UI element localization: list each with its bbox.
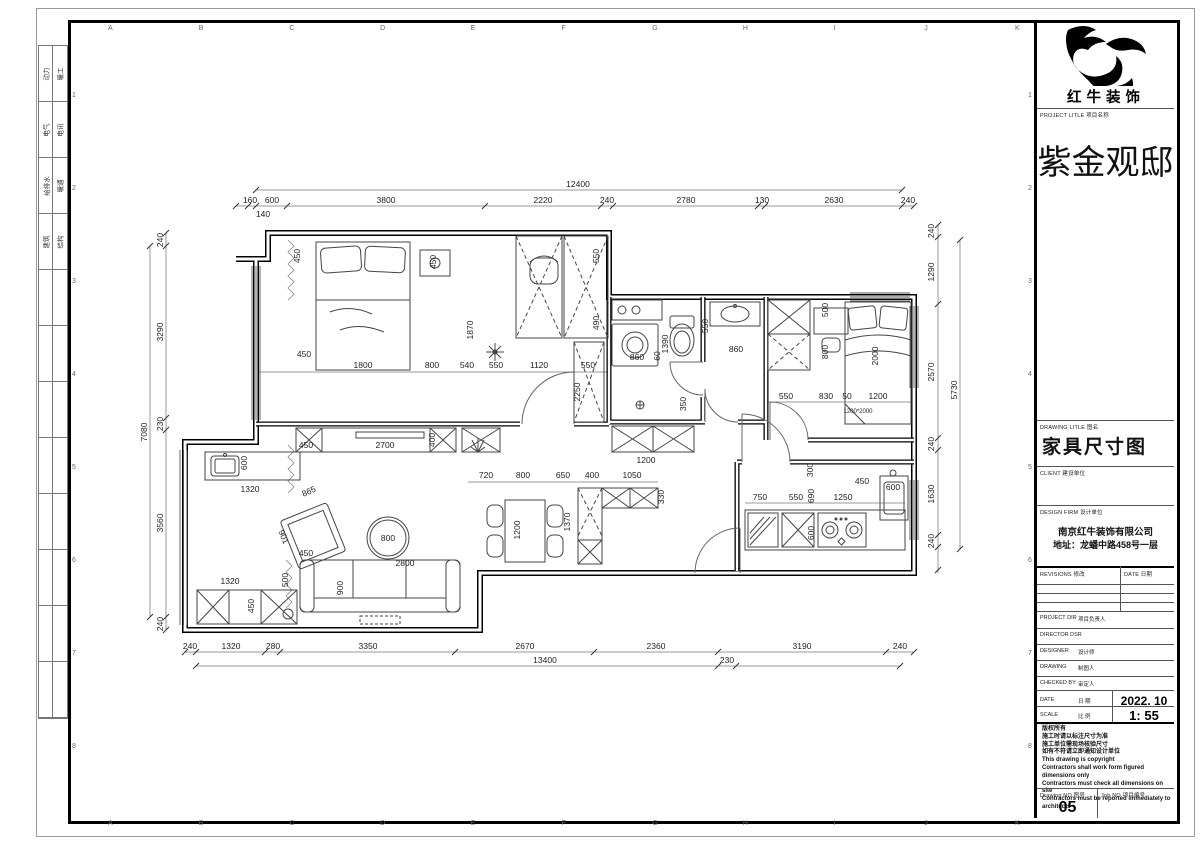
dimension-label: 12400 (566, 179, 590, 189)
vanity-sink (710, 302, 760, 326)
redniu-logo-icon (1050, 24, 1160, 86)
dimension-label: 350 (678, 397, 688, 411)
row-label: DIRECTOR DSR (1040, 632, 1082, 638)
dimension-lines (150, 190, 960, 666)
row-label-cn: 审定人 (1078, 680, 1095, 688)
dimension-label: 50 (842, 391, 852, 401)
divider (1037, 676, 1174, 677)
dimension-label: 13400 (533, 655, 557, 665)
drawing-sheet: { "sheet": { "grid_letters": ["A","B","C… (0, 0, 1200, 844)
dimension-label: 1320 (222, 641, 241, 651)
divider (1037, 690, 1174, 691)
scale-value: 1: 55 (1114, 708, 1174, 723)
kitchen-counter (745, 510, 905, 550)
dimension-label: 865 (300, 484, 317, 499)
dimension-label: 1200*2000 (843, 409, 873, 415)
dimension-label: 2000 (870, 346, 880, 365)
row-label-cn: 项目负责人 (1078, 615, 1106, 623)
dimension-label: 490 (591, 316, 601, 330)
dimension-label: 400 (427, 433, 437, 447)
dimension-label: 230 (720, 655, 734, 665)
dimension-label: 1250 (834, 492, 853, 502)
dimension-label: 800 (425, 360, 439, 370)
wardrobe-bedroom2 (768, 300, 810, 370)
dimension-label: 240 (926, 437, 936, 451)
drawing-no-label: Drawing NO 图号 (1040, 791, 1085, 799)
dimension-label: 860 (729, 344, 743, 354)
dimension-label: 240 (926, 224, 936, 238)
job-no-label: Job NO 项目编号 (1101, 791, 1145, 799)
master-bed (316, 242, 410, 370)
dimension-label: 1800 (354, 360, 373, 370)
dimension-label: 1320 (241, 484, 260, 494)
divider (1037, 628, 1174, 629)
armchair (280, 503, 346, 570)
dimension-label: 500 (820, 303, 830, 317)
dimension-label: 5730 (949, 380, 959, 399)
dimension-label: 450 (246, 599, 256, 613)
dimension-label: 300 (805, 463, 815, 477)
note-line: 如有不符请立即通知设计单位 (1042, 749, 1172, 757)
walls (185, 233, 914, 630)
dimension-label: 600 (806, 526, 816, 540)
design-firm-address: 地址：龙蟠中路458号一层 (1037, 538, 1174, 551)
floor-plan: 1240016060038002220240278013026302401402… (0, 0, 1200, 844)
dimension-label: 720 (479, 470, 493, 480)
dimension-label: 800 (516, 470, 530, 480)
date-label: DATE (1040, 697, 1054, 703)
dimension-label: 3350 (359, 641, 378, 651)
company-logo-text: 红牛装饰 (1040, 86, 1172, 107)
drawing-no-value: 05 (1040, 799, 1095, 817)
floor-drain-icon (636, 401, 644, 409)
divider (1037, 505, 1174, 506)
dimension-label: 1200 (512, 520, 522, 539)
kitchen-sink (880, 470, 908, 520)
dimension-label: 450 (297, 349, 311, 359)
dimension-label: 2360 (647, 641, 666, 651)
note-line: 施工时请以标注尺寸为准 (1042, 734, 1172, 742)
dimension-label: 750 (753, 492, 767, 502)
note-line: This drawing is copyright (1042, 757, 1172, 765)
divider (1037, 420, 1174, 421)
dining-cabinet (578, 488, 658, 564)
project-name: 紫金观邸 (1037, 130, 1174, 198)
divider (1112, 690, 1113, 722)
revisions-label: REVISIONS 修改 (1040, 570, 1085, 578)
dimension-label: 130 (755, 195, 769, 205)
dimension-label: 550 (789, 492, 803, 502)
client-label: CLIENT 建设单位 (1040, 469, 1085, 477)
dining-table (487, 500, 563, 562)
dimension-label: 2670 (516, 641, 535, 651)
project-label: PROJECT LITLE 项目名称 (1040, 111, 1109, 119)
gas-stove (818, 513, 866, 547)
row-label-cn: 制图人 (1078, 664, 1095, 672)
dimension-label: 1870 (465, 320, 475, 339)
dimension-label: 900 (335, 581, 345, 595)
ceiling-fan-icon (486, 343, 504, 361)
dimension-label: 830 (819, 391, 833, 401)
dimension-label: 3800 (377, 195, 396, 205)
divider (1037, 611, 1174, 612)
divider (1037, 788, 1174, 789)
dimension-label: 1370 (562, 512, 572, 531)
dimension-label: 240 (183, 641, 197, 651)
dimension-label: 240 (155, 617, 165, 631)
dimension-label: 500 (280, 573, 290, 587)
scale-label: SCALE (1040, 712, 1058, 718)
dimension-label: 240 (155, 233, 165, 247)
divider (1037, 722, 1174, 724)
dimension-label: 240 (901, 195, 915, 205)
dimension-label: 280 (266, 641, 280, 651)
dimension-label: 600 (886, 482, 900, 492)
dimension-label: 800 (820, 345, 830, 359)
dimension-label: 2700 (376, 440, 395, 450)
dimension-label: 650 (556, 470, 570, 480)
dimension-label: 400 (585, 470, 599, 480)
dimension-label: 1120 (530, 360, 549, 370)
row-label: DESIGNER (1040, 648, 1069, 654)
dimension-label: 450 (292, 249, 302, 263)
divider (1037, 602, 1174, 603)
note-line: 版权所有 (1042, 726, 1172, 734)
dimension-label: 2780 (677, 195, 696, 205)
hall-cabinet (612, 426, 694, 452)
design-firm-name: 南京红牛装饰有限公司 (1037, 524, 1174, 538)
dimension-label: 7080 (139, 422, 149, 441)
dimension-label: 2220 (534, 195, 553, 205)
divider (1037, 706, 1174, 707)
dimension-label: 2250 (572, 382, 582, 401)
dimension-label: 450 (299, 440, 313, 450)
bathroom-counter (612, 300, 662, 320)
divider (1037, 566, 1174, 568)
dimension-label: 140 (256, 209, 270, 219)
divider (1037, 108, 1174, 109)
dimension-label: 2630 (825, 195, 844, 205)
divider (1037, 466, 1174, 467)
dimension-label: 160 (243, 195, 257, 205)
drawing-title: 家具尺寸图 (1042, 432, 1147, 459)
divider (1037, 644, 1174, 645)
dimension-label: 540 (460, 360, 474, 370)
dimension-label: 1200 (637, 455, 656, 465)
dimension-label: 550 (581, 360, 595, 370)
divider (1097, 788, 1098, 818)
divider (1120, 566, 1121, 611)
note-line: Contractors shall work form figured dime… (1042, 765, 1172, 781)
toilet (670, 316, 694, 356)
dimension-label: 450 (428, 255, 438, 269)
utility-counter (205, 452, 300, 480)
row-label: DRAWING (1040, 664, 1066, 670)
dimension-label: 600 (239, 456, 249, 470)
scale-label-cn: 比 例 (1078, 712, 1091, 720)
dimension-label: 2570 (926, 362, 936, 381)
row-label: PROJECT DIR (1040, 615, 1077, 621)
dimension-label: 1390 (660, 334, 670, 353)
date-label-cn: 日 期 (1078, 697, 1091, 705)
row-label-cn: 设计师 (1078, 648, 1095, 656)
dimension-label: 1200 (869, 391, 888, 401)
chair-master (530, 256, 558, 284)
dimension-label: 690 (806, 489, 816, 503)
design-firm-label: DESIGN FIRM 设计单位 (1040, 508, 1103, 516)
dimension-label: 230 (155, 417, 165, 431)
dimension-label: 1630 (926, 484, 936, 503)
sofa (300, 560, 460, 624)
divider (1037, 593, 1174, 594)
dimension-label: 550 (591, 249, 601, 263)
dimension-label: 240 (600, 195, 614, 205)
dimension-label: 450 (299, 548, 313, 558)
dimension-label: 1320 (221, 576, 240, 586)
revisions-date-label: DATE 日期 (1124, 570, 1152, 578)
dimension-label: 600 (265, 195, 279, 205)
dimension-label: 1290 (926, 262, 936, 281)
dimension-label: 240 (926, 534, 936, 548)
dimension-label: 450 (855, 476, 869, 486)
dimension-label: 330 (656, 490, 666, 504)
drawing-title-label: DRAWING LITLE 图名 (1040, 423, 1098, 431)
divider (1037, 584, 1174, 585)
dimension-label: 3560 (155, 513, 165, 532)
dimension-label: 3290 (155, 322, 165, 341)
dimension-label: 240 (893, 641, 907, 651)
divider (1037, 660, 1174, 661)
dimension-label: 2800 (396, 558, 415, 568)
dimension-label: 800 (381, 533, 395, 543)
dimension-label: 550 (779, 391, 793, 401)
dimension-label: 3190 (793, 641, 812, 651)
dimension-label: 1050 (623, 470, 642, 480)
dimension-label: 550 (489, 360, 503, 370)
dimension-label: 550 (700, 319, 710, 333)
row-label: CHECKED BY (1040, 680, 1076, 686)
dimension-label: 860 (630, 352, 644, 362)
shoe-cabinet (462, 428, 500, 452)
